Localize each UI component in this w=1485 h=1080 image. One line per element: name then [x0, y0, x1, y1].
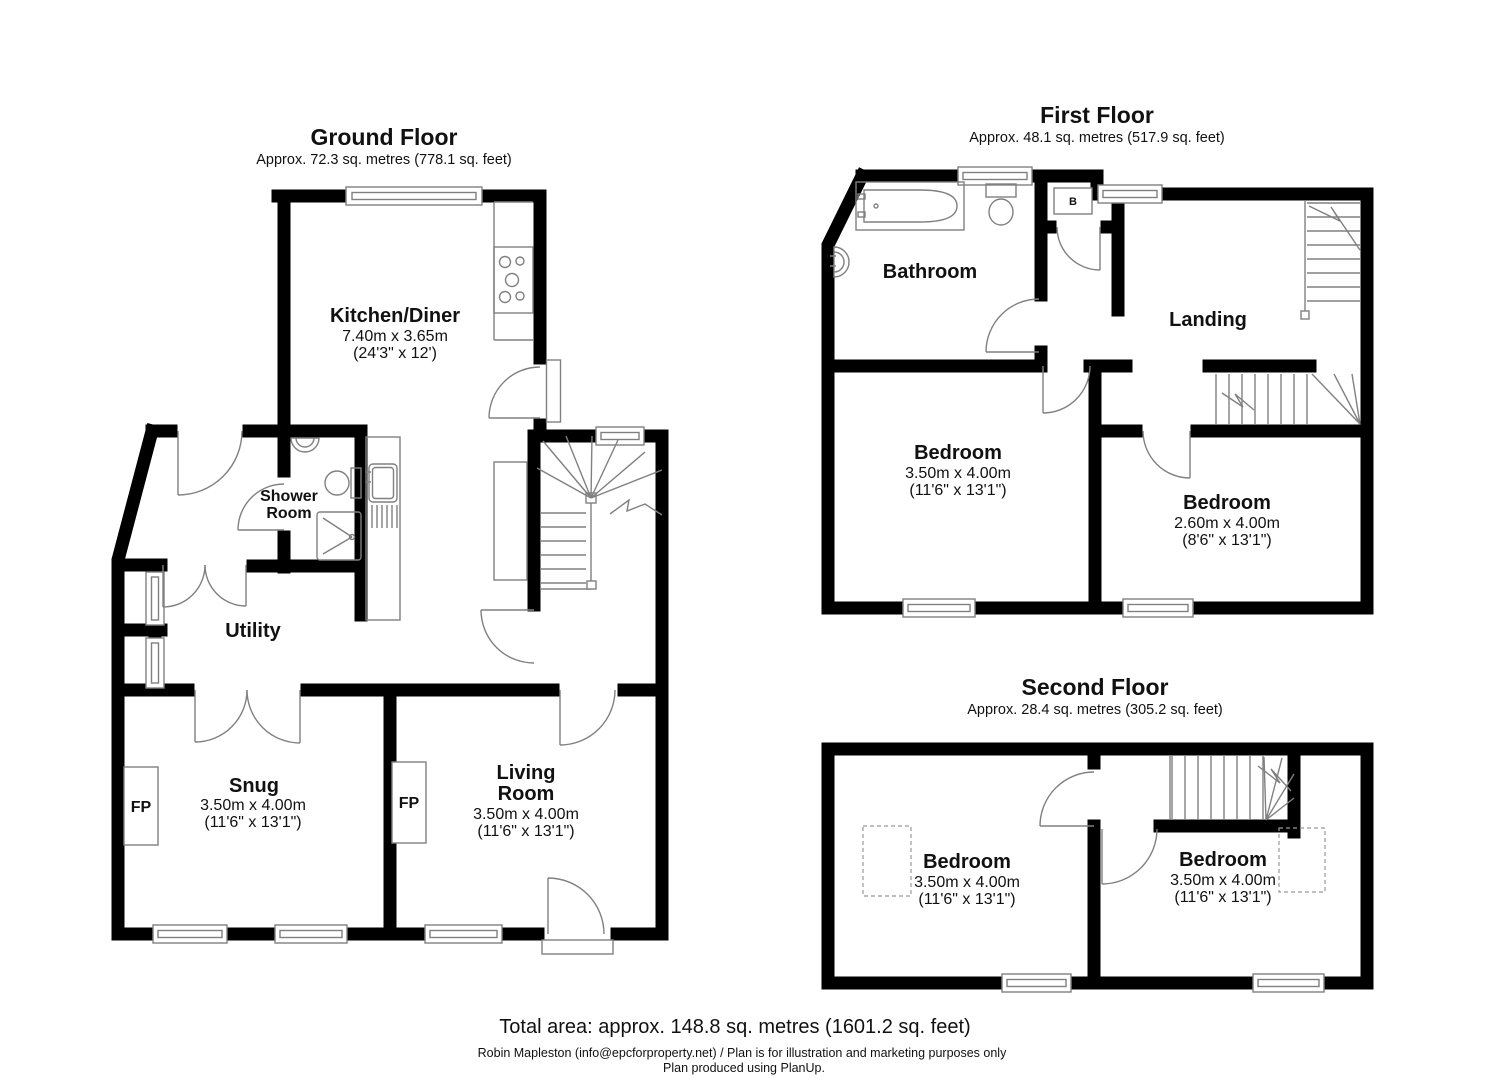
bathroom-label: Bathroom	[883, 261, 977, 283]
second-bedroom-right-label: Bedroom 3.50m x 4.00m (11'6" x 13'1")	[1170, 849, 1276, 906]
utility-window-upper	[146, 572, 164, 625]
svg-text:3.50m x 4.00m: 3.50m x 4.00m	[1170, 872, 1276, 889]
second-bedroom-right-window	[1253, 974, 1324, 992]
svg-text:Room: Room	[498, 783, 555, 805]
svg-text:(11'6" x 13'1"): (11'6" x 13'1")	[918, 891, 1015, 908]
living-room-window	[425, 925, 502, 943]
second-bedroom-left-window	[1002, 974, 1071, 992]
svg-text:7.40m x 3.65m: 7.40m x 3.65m	[342, 328, 448, 345]
utility-label: Utility	[225, 620, 281, 642]
first-bedroom-right-window	[1123, 599, 1193, 617]
snug-window-right	[275, 925, 347, 943]
svg-text:Living: Living	[497, 762, 556, 784]
svg-text:(11'6" x 13'1"): (11'6" x 13'1")	[204, 814, 301, 831]
svg-text:Snug: Snug	[229, 775, 279, 797]
svg-text:3.50m x 4.00m: 3.50m x 4.00m	[200, 797, 306, 814]
snug-window-left	[153, 925, 227, 943]
svg-text:Bedroom: Bedroom	[923, 851, 1011, 873]
svg-text:(11'6" x 13'1"): (11'6" x 13'1")	[909, 482, 1006, 499]
first-floor-title: First Floor	[1040, 102, 1154, 128]
shower-room-label: Shower Room	[260, 488, 318, 522]
first-bedroom-left-window	[903, 599, 975, 617]
second-bedroom-left-label: Bedroom 3.50m x 4.00m (11'6" x 13'1")	[914, 851, 1020, 908]
bathroom-window	[958, 167, 1032, 185]
first-bedroom-right-label: Bedroom 2.60m x 4.00m (8'6" x 13'1")	[1174, 492, 1280, 549]
total-area-text: Total area: approx. 148.8 sq. metres (16…	[499, 1016, 970, 1038]
svg-text:(8'6" x 13'1"): (8'6" x 13'1")	[1182, 532, 1272, 549]
svg-text:(24'3" x 12'): (24'3" x 12')	[353, 345, 437, 362]
second-floor-area: Approx. 28.4 sq. metres (305.2 sq. feet)	[967, 702, 1223, 718]
ground-floor-title: Ground Floor	[311, 124, 458, 150]
svg-text:(11'6" x 13'1"): (11'6" x 13'1")	[477, 823, 574, 840]
floorplan-canvas: Ground Floor Approx. 72.3 sq. metres (77…	[0, 0, 1485, 1080]
svg-text:Room: Room	[266, 505, 311, 522]
snug-fireplace: FP	[124, 767, 158, 845]
kitchen-window	[346, 187, 482, 205]
ground-floor-area: Approx. 72.3 sq. metres (778.1 sq. feet)	[256, 152, 512, 168]
svg-text:Bedroom: Bedroom	[914, 442, 1002, 464]
credit-text: Robin Mapleston (info@epcforproperty.net…	[478, 1046, 1007, 1060]
svg-text:Shower: Shower	[260, 488, 318, 505]
boiler-cupboard: B	[1054, 188, 1092, 214]
snug-fireplace-label: FP	[131, 799, 152, 816]
utility-window-lower	[146, 638, 164, 688]
living-fireplace-label: FP	[399, 795, 420, 812]
produced-text: Plan produced using PlanUp.	[663, 1061, 825, 1075]
svg-text:(11'6" x 13'1"): (11'6" x 13'1")	[1174, 889, 1271, 906]
svg-text:Kitchen/Diner: Kitchen/Diner	[330, 305, 460, 327]
svg-text:Bedroom: Bedroom	[1183, 492, 1271, 514]
svg-text:3.50m x 4.00m: 3.50m x 4.00m	[905, 465, 1011, 482]
svg-text:2.60m x 4.00m: 2.60m x 4.00m	[1174, 515, 1280, 532]
living-fireplace: FP	[392, 762, 426, 843]
first-floor-area: Approx. 48.1 sq. metres (517.9 sq. feet)	[969, 130, 1225, 146]
boiler-label: B	[1069, 196, 1077, 208]
svg-text:3.50m x 4.00m: 3.50m x 4.00m	[473, 806, 579, 823]
landing-window	[1098, 185, 1162, 203]
landing-label: Landing	[1169, 309, 1247, 331]
stair-hall-window	[596, 427, 644, 445]
svg-text:3.50m x 4.00m: 3.50m x 4.00m	[914, 874, 1020, 891]
second-floor-title: Second Floor	[1022, 674, 1169, 700]
svg-text:Bedroom: Bedroom	[1179, 849, 1267, 871]
first-bedroom-left-label: Bedroom 3.50m x 4.00m (11'6" x 13'1")	[905, 442, 1011, 499]
